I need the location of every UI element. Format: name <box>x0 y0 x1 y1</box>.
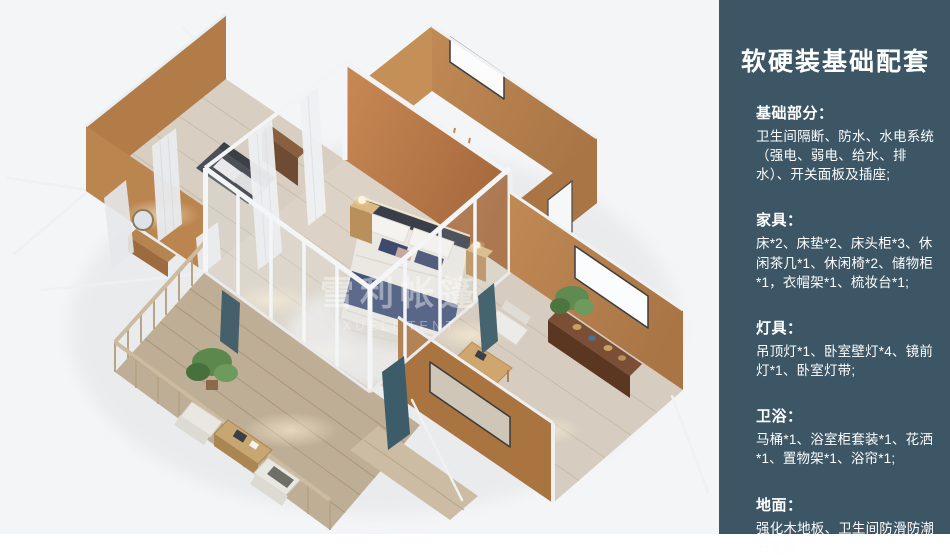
floorplan-svg: 雪利帐篷 XUELI TENT <box>0 0 719 534</box>
watermark-cn: 雪利帐篷 <box>320 275 480 313</box>
section-basics-heading: 基础部分： <box>756 102 937 123</box>
section-lighting: 灯具： 吊顶灯*1、卧室壁灯*4、镜前灯*1、卧室灯带; <box>756 317 937 380</box>
section-flooring-heading: 地面： <box>756 494 937 515</box>
section-furniture: 家具： 床*2、床垫*2、床头柜*3、休闲茶几*1、休闲椅*2、储物柜*1，衣帽… <box>756 209 937 291</box>
section-lighting-body: 吊顶灯*1、卧室壁灯*4、镜前灯*1、卧室灯带; <box>756 342 937 380</box>
section-flooring-body: 强化木地板、卫生间防滑防潮石塑板; <box>756 519 937 557</box>
slide: 雪利帐篷 XUELI TENT 软硬装基础配套 基础部分： 卫生间隔断、防水、水… <box>0 0 950 534</box>
section-bathroom: 卫浴： 马桶*1、浴室柜套装*1、花洒*1、置物架*1、浴帘*1; <box>756 405 937 468</box>
section-lighting-heading: 灯具： <box>756 317 937 338</box>
sidebar: 软硬装基础配套 基础部分： 卫生间隔断、防水、水电系统（强电、弱电、给水、排水）… <box>719 0 950 534</box>
floorplan-render: 雪利帐篷 XUELI TENT <box>0 0 719 534</box>
watermark: 雪利帐篷 XUELI TENT <box>320 275 480 333</box>
section-bathroom-body: 马桶*1、浴室柜套装*1、花洒*1、置物架*1、浴帘*1; <box>756 430 937 468</box>
section-bathroom-heading: 卫浴： <box>756 405 937 426</box>
corner-post-top <box>343 62 348 160</box>
section-basics: 基础部分： 卫生间隔断、防水、水电系统（强电、弱电、给水、排水）、开关面板及插座… <box>756 102 937 184</box>
sidebar-title: 软硬装基础配套 <box>741 42 937 78</box>
watermark-en: XUELI TENT <box>343 318 458 333</box>
section-flooring: 地面： 强化木地板、卫生间防滑防潮石塑板; <box>756 494 937 557</box>
section-furniture-heading: 家具： <box>756 209 937 230</box>
section-basics-body: 卫生间隔断、防水、水电系统（强电、弱电、给水、排水）、开关面板及插座; <box>756 127 937 184</box>
section-furniture-body: 床*2、床垫*2、床头柜*3、休闲茶几*1、休闲椅*2、储物柜*1，衣帽架*1、… <box>756 234 937 291</box>
dining-corner-post <box>551 423 555 503</box>
